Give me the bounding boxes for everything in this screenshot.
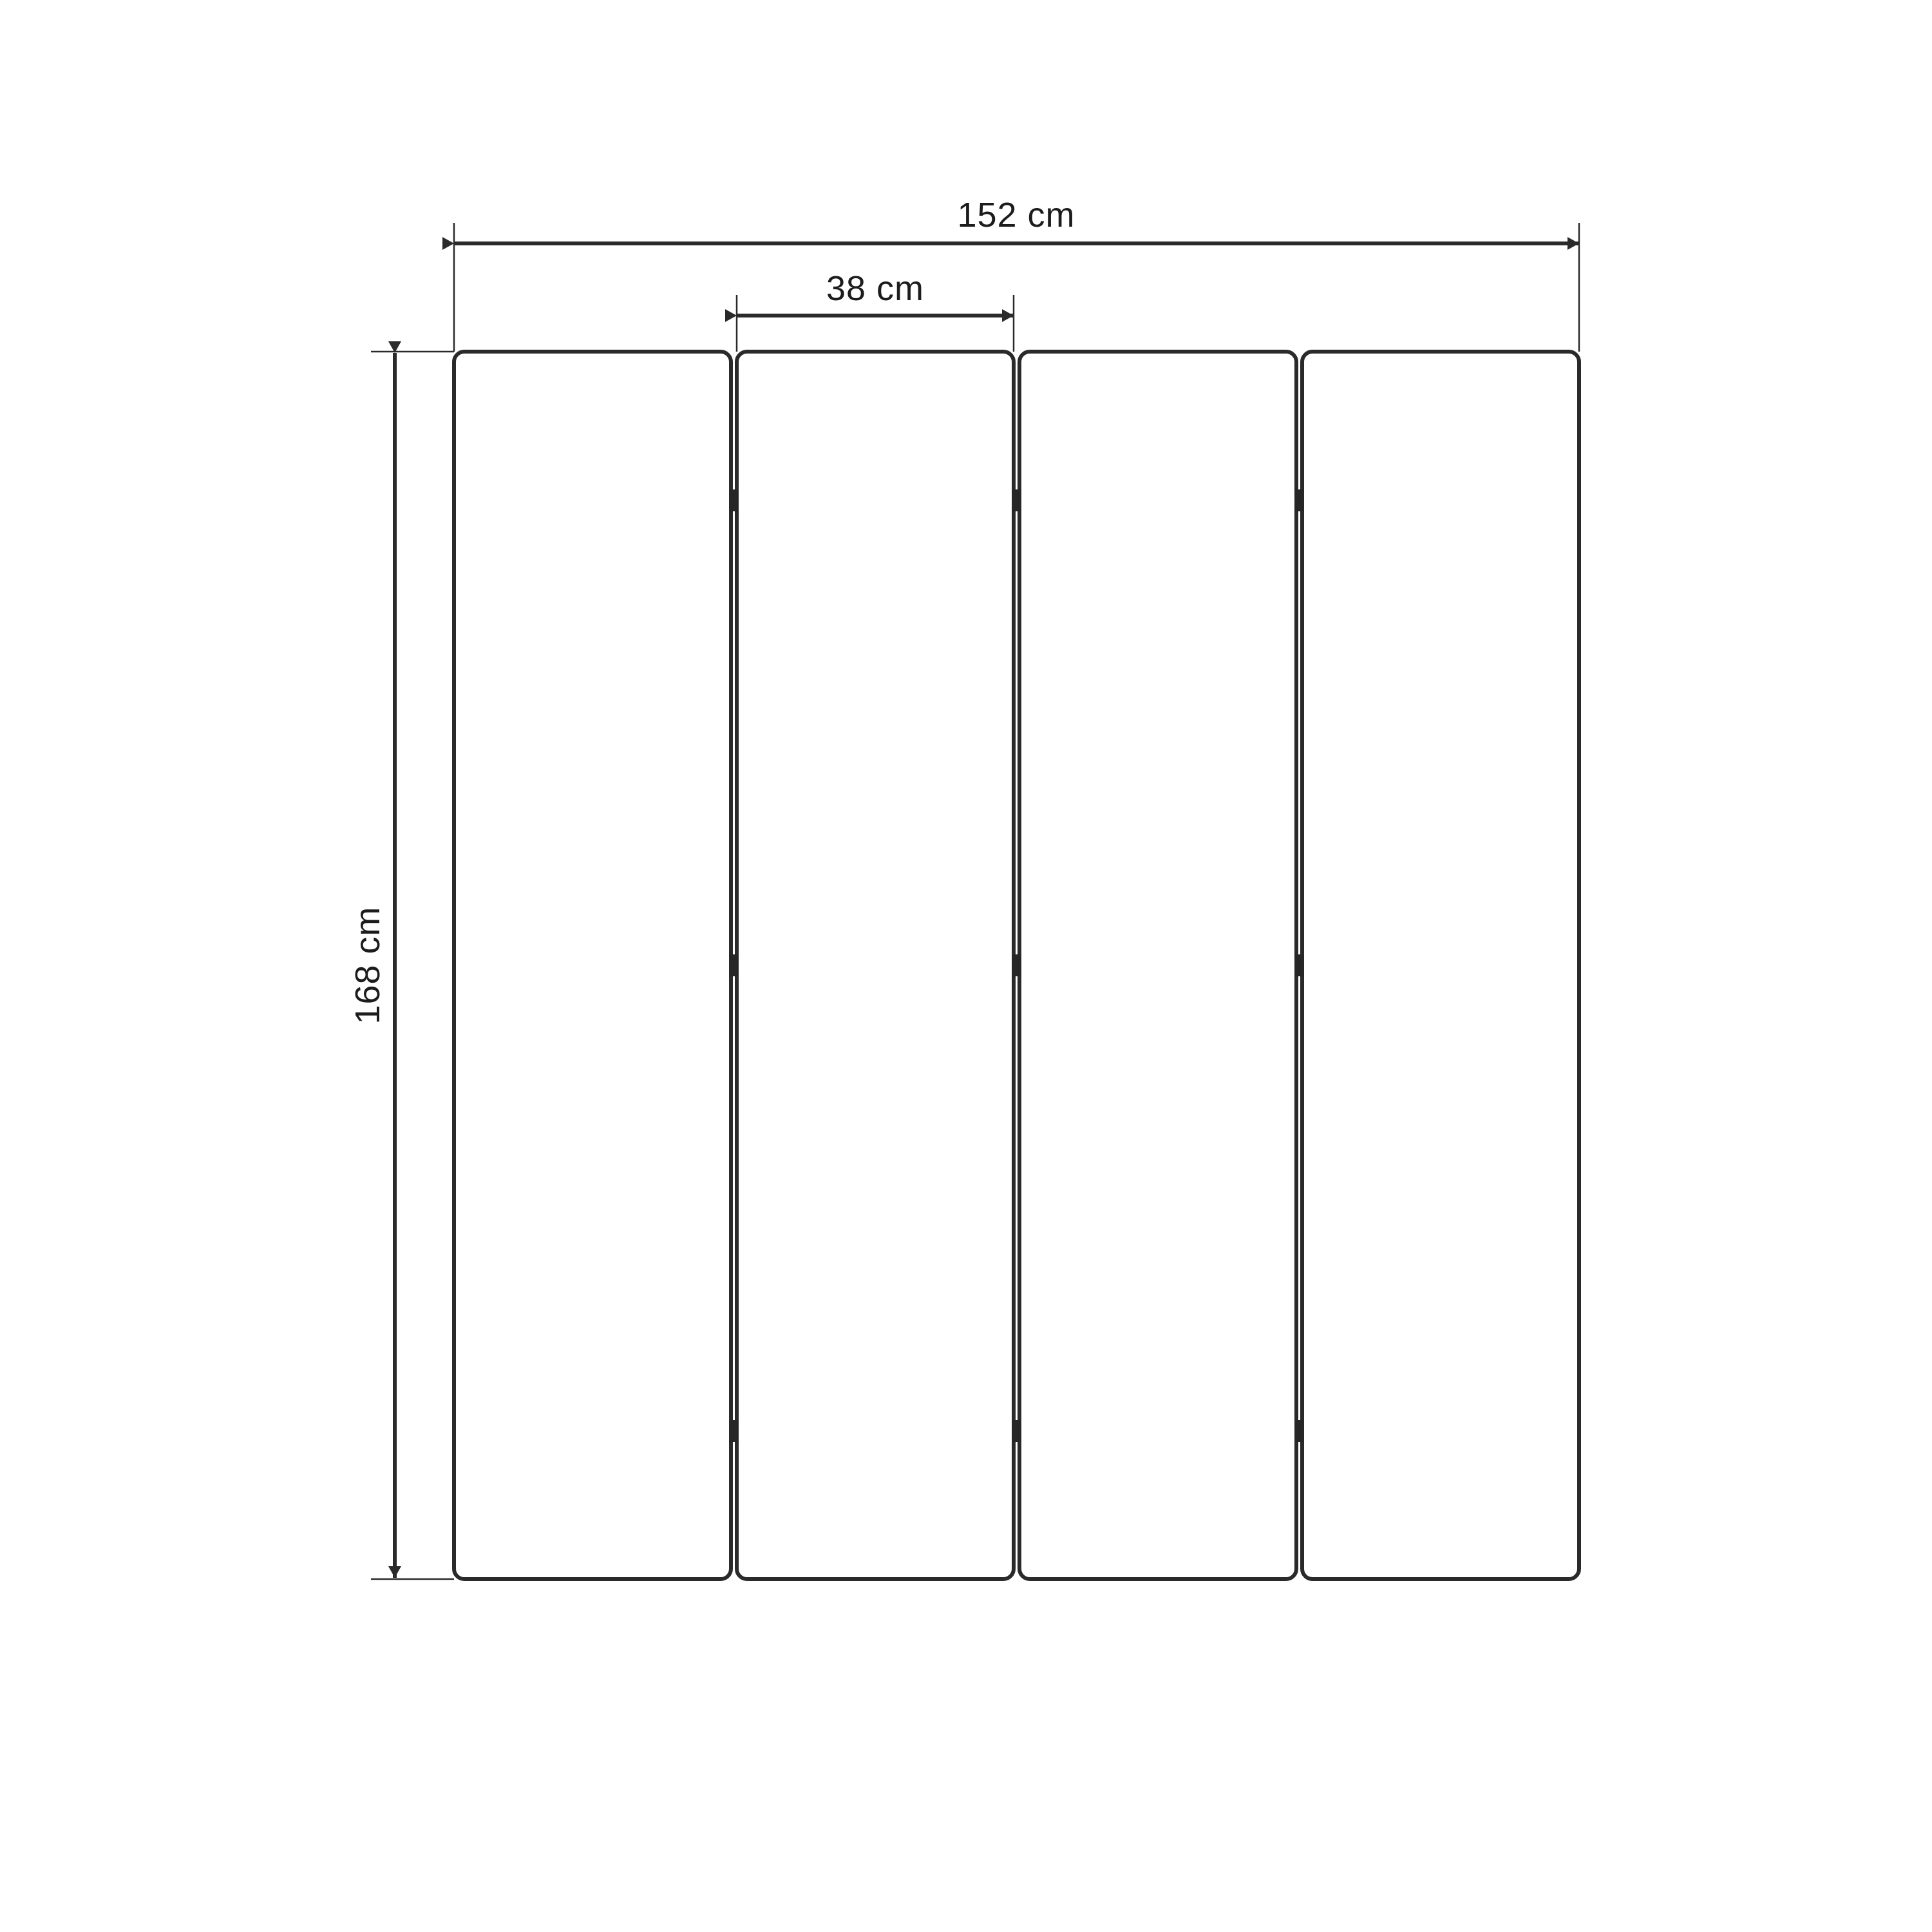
hinge bbox=[1295, 954, 1303, 976]
dimension-diagram: 152 cm 38 cm 168 cm bbox=[0, 0, 1932, 1932]
panel-4 bbox=[1302, 352, 1579, 1579]
dimension-label-height: 168 cm bbox=[348, 906, 387, 1024]
hinge bbox=[730, 489, 738, 511]
dimension-label-total-width: 152 cm bbox=[957, 196, 1075, 234]
hinge bbox=[1012, 489, 1021, 511]
dimension-label-panel-width: 38 cm bbox=[826, 269, 924, 308]
hinge bbox=[1012, 1420, 1021, 1442]
dimension-total-width: 152 cm bbox=[454, 196, 1579, 352]
panel-3 bbox=[1019, 352, 1296, 1579]
page: 152 cm 38 cm 168 cm bbox=[0, 0, 1932, 1932]
dimension-panel-width: 38 cm bbox=[737, 269, 1014, 352]
panel-1 bbox=[454, 352, 731, 1579]
hinge bbox=[730, 954, 738, 976]
dimension-height: 168 cm bbox=[348, 352, 454, 1579]
panel-2 bbox=[737, 352, 1014, 1579]
hinge bbox=[1295, 489, 1303, 511]
hinge bbox=[1295, 1420, 1303, 1442]
hinge bbox=[1012, 954, 1021, 976]
hinge bbox=[730, 1420, 738, 1442]
